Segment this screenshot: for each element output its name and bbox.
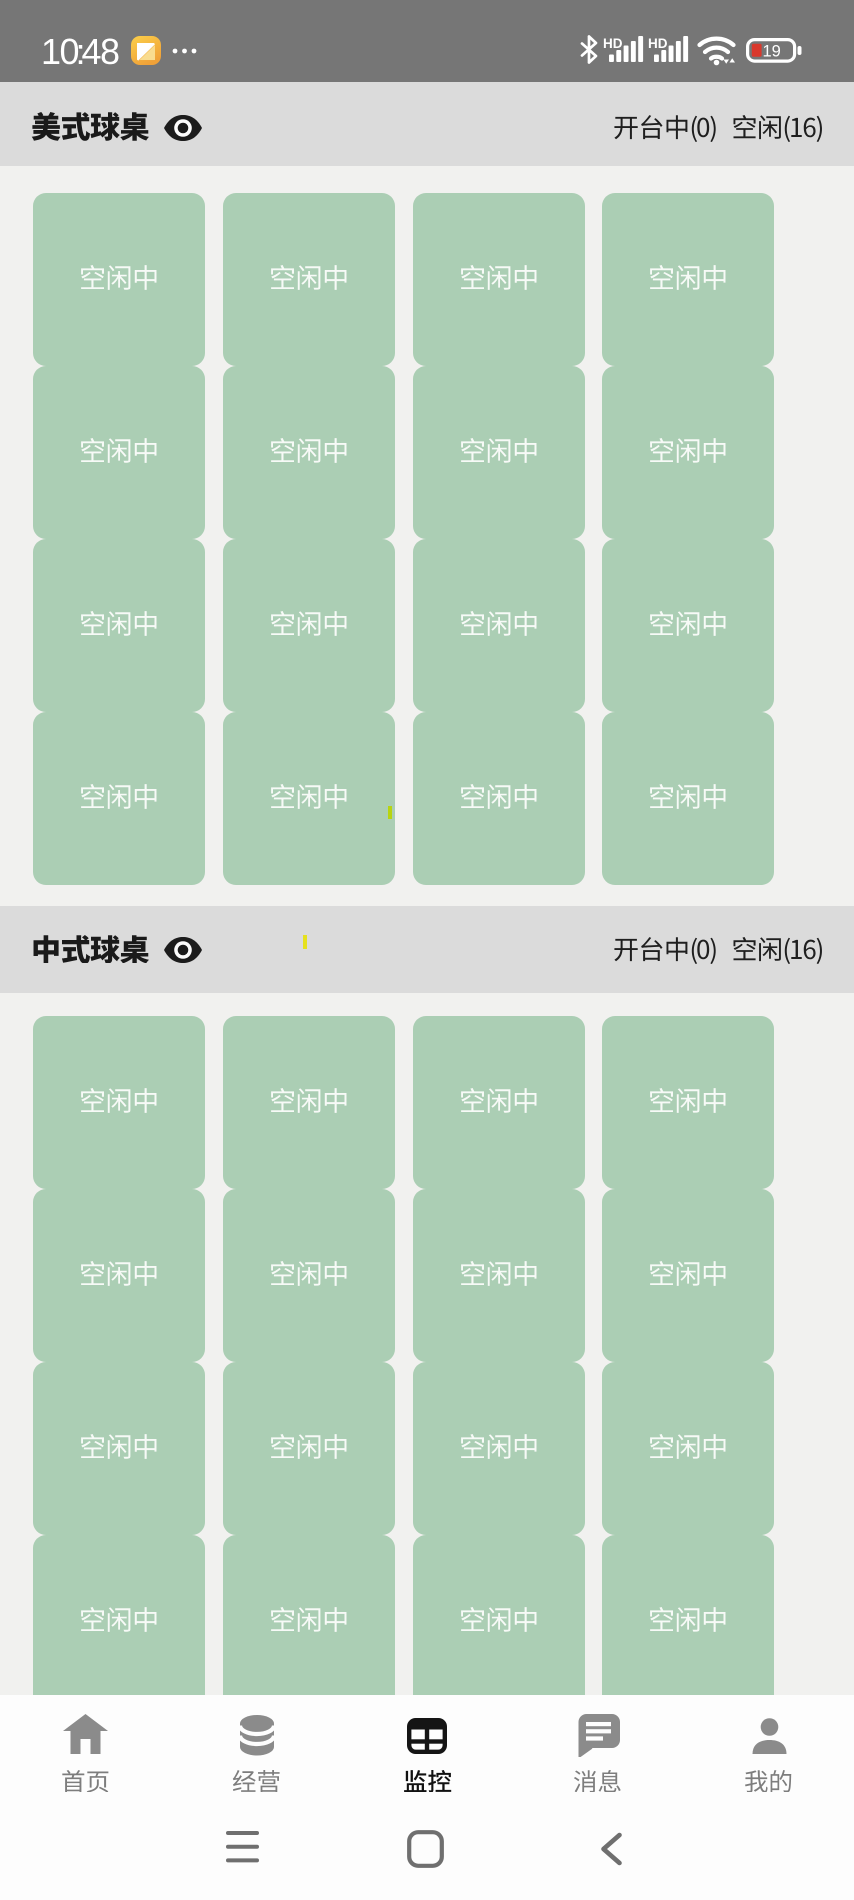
svg-text:HD: HD	[603, 36, 623, 51]
svg-text:HD: HD	[648, 36, 668, 51]
svg-text:19: 19	[763, 42, 781, 60]
